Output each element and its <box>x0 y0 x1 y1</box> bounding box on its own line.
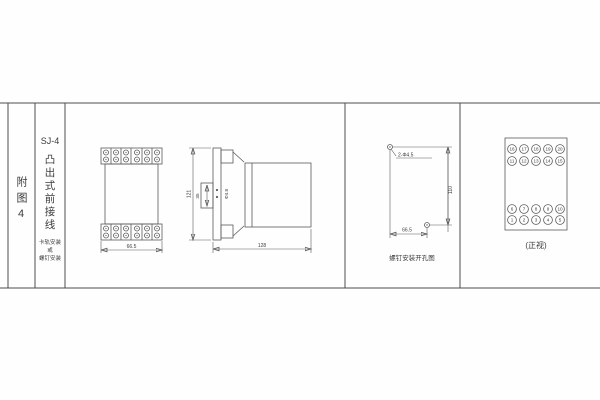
drill-hole-diagram: 2-Φ4.5 110 66.5 螺钉安装开孔图 <box>388 145 455 263</box>
terminal-17: 17 <box>521 147 527 152</box>
terminal-18: 18 <box>533 147 539 152</box>
terminal-row-2: 11 12 13 14 15 <box>508 157 565 166</box>
drill-width-dim-label: 66.5 <box>402 228 412 234</box>
drill-holes-label: 2-Φ4.5 <box>398 153 414 159</box>
terminal-row-1: 16 17 18 19 20 <box>508 145 565 154</box>
terminal-7: 7 <box>523 207 526 212</box>
terminal-face-view: 16 17 18 19 20 11 12 13 14 15 6 7 8 9 10… <box>505 138 567 250</box>
drill-height-dimension: 110 <box>393 147 454 232</box>
terminal-11: 11 <box>510 159 515 164</box>
side-view-depth-dimension: 128 <box>213 229 311 253</box>
side-hole-dim-label: Φ4.8 <box>224 189 229 199</box>
front-view-width-dimension: 66.5 <box>101 241 162 253</box>
drawing-canvas: 66.5 121 35 Φ4.8 128 <box>0 0 600 400</box>
mounting-note-line1: 卡轨安装 <box>35 241 65 247</box>
terminal-10: 10 <box>557 207 563 212</box>
terminal-1: 1 <box>511 218 514 223</box>
terminal-view-caption: (正视) <box>525 240 547 250</box>
front-width-dim-label: 66.5 <box>127 244 137 250</box>
terminal-4: 4 <box>547 218 550 223</box>
terminal-9: 9 <box>547 207 550 212</box>
terminal-6: 6 <box>511 207 514 212</box>
terminal-row-3: 6 7 8 9 10 <box>508 205 565 214</box>
drill-holes-callout: 2-Φ4.5 <box>391 149 432 159</box>
figure-number-label: 附图4 <box>15 176 26 225</box>
terminal-15: 15 <box>557 159 563 164</box>
front-view-drawing: 66.5 <box>101 148 162 253</box>
terminal-8: 8 <box>535 207 538 212</box>
relay-model-label: SJ-4 <box>35 137 65 146</box>
side-view-drawing: 121 35 Φ4.8 128 <box>187 148 312 253</box>
engineering-drawing-sheet: 66.5 121 35 Φ4.8 128 <box>0 0 600 400</box>
terminal-13: 13 <box>533 159 539 164</box>
drill-diagram-caption: 螺钉安装开孔图 <box>389 253 435 262</box>
terminal-3: 3 <box>535 218 538 223</box>
side-view-slot-dimension: 35 Φ4.8 <box>195 185 229 206</box>
terminal-12: 12 <box>521 159 527 164</box>
terminal-row-4: 1 2 3 4 5 <box>508 216 565 225</box>
drill-height-dim-label: 110 <box>448 186 454 194</box>
side-slot-dim-label: 35 <box>195 193 200 199</box>
side-height-dim-label: 121 <box>187 190 193 199</box>
mounting-note-line2: 或 <box>35 249 65 255</box>
terminal-14: 14 <box>545 159 551 164</box>
mounting-note-line3: 螺钉安装 <box>35 257 65 263</box>
drawing-title-vertical: 凸出式前接线 <box>44 154 55 232</box>
terminal-2: 2 <box>523 218 526 223</box>
table-grid <box>0 103 600 288</box>
terminal-16: 16 <box>509 147 515 152</box>
drill-width-dimension: 66.5 <box>390 150 427 238</box>
terminal-20: 20 <box>557 147 563 152</box>
terminal-19: 19 <box>545 147 551 152</box>
terminal-5: 5 <box>559 218 562 223</box>
side-depth-dim-label: 128 <box>258 243 267 249</box>
